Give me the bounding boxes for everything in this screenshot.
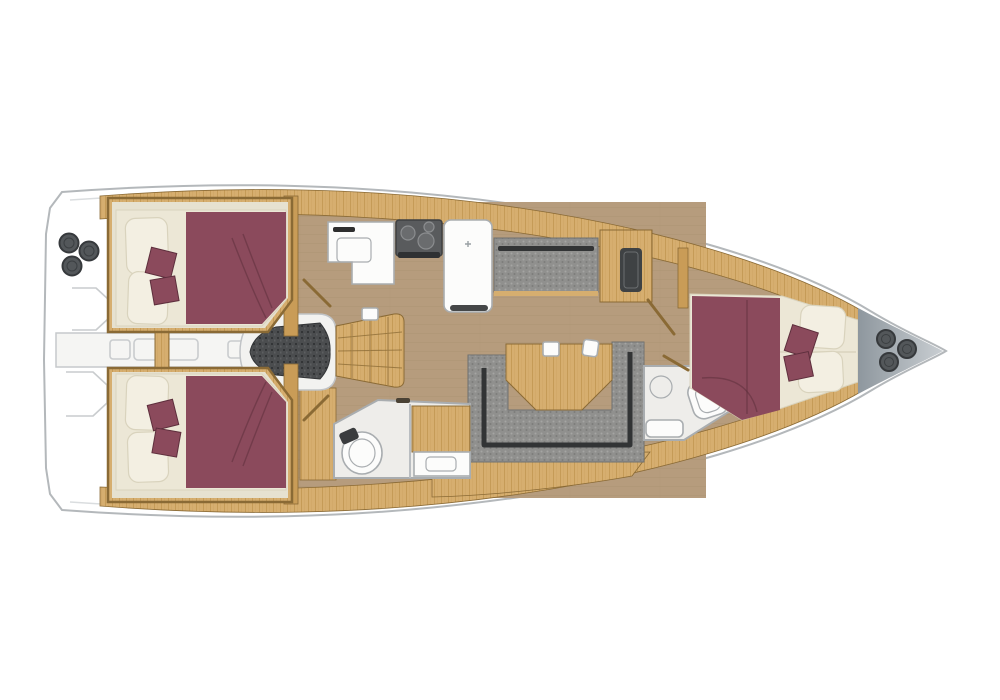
storage-cabinet — [600, 230, 652, 302]
aft-head-cabinet — [412, 406, 470, 452]
aft-walkthrough-corridor — [56, 330, 252, 369]
bulkhead-forward — [678, 248, 688, 308]
aft-cabin-starboard — [108, 368, 292, 502]
bow-foredeck — [858, 308, 943, 394]
aft-head-sink-counter — [414, 452, 470, 476]
floor-hatch — [543, 342, 559, 356]
throw-cushion — [152, 428, 181, 457]
wood-step-aft-of-head — [300, 388, 336, 480]
throw-cushion — [147, 399, 179, 431]
throw-cushion — [784, 352, 814, 382]
table-sink-fitting — [582, 339, 599, 357]
saloon-settee — [494, 238, 598, 296]
dinette — [468, 339, 644, 462]
yacht-floorplan-canvas — [0, 0, 1000, 700]
galley-faucet — [333, 227, 355, 232]
throw-cushion — [150, 276, 179, 305]
shower-tray — [646, 420, 683, 437]
aft-cabin-port — [108, 198, 292, 332]
throw-cushion — [145, 247, 177, 279]
companionway-stairs — [336, 314, 404, 387]
aft-head-door-latch — [396, 398, 410, 403]
floor-hatch — [362, 308, 378, 320]
corridor-crossbeam — [155, 330, 169, 369]
yacht-floorplan — [0, 0, 1000, 700]
galley-stove — [396, 220, 442, 258]
galley-refrigerator-peninsula — [444, 220, 492, 312]
